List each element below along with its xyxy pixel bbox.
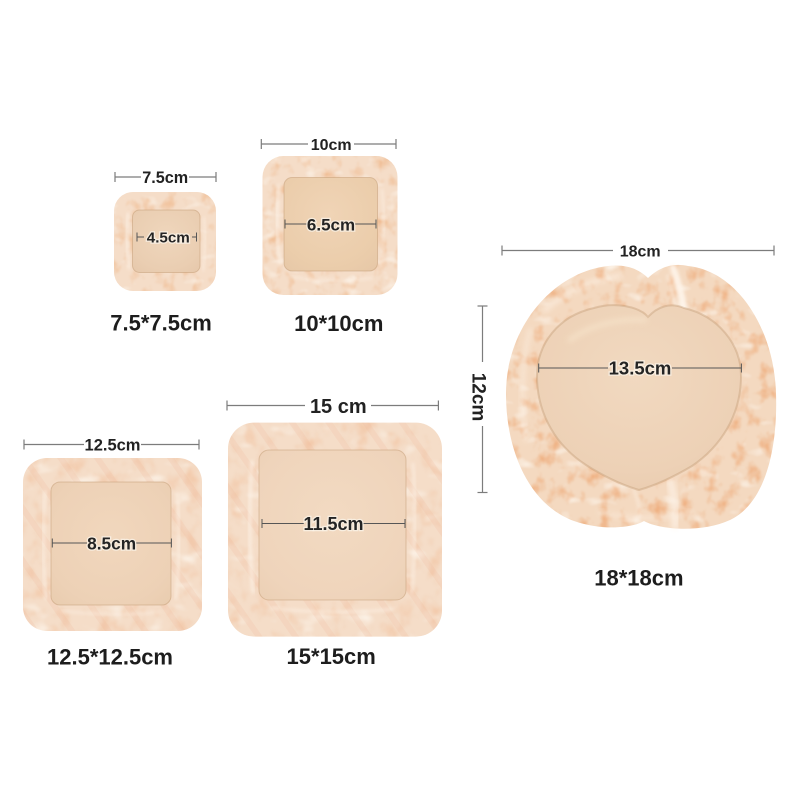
svg-text:12.5cm: 12.5cm <box>85 437 141 455</box>
svg-text:6.5cm: 6.5cm <box>307 215 355 234</box>
svg-text:15*15cm: 15*15cm <box>287 644 376 669</box>
svg-text:7.5*7.5cm: 7.5*7.5cm <box>110 311 212 336</box>
svg-text:8.5cm: 8.5cm <box>87 534 136 554</box>
svg-text:11.5cm: 11.5cm <box>303 514 363 534</box>
svg-text:4.5cm: 4.5cm <box>147 229 190 246</box>
svg-text:7.5cm: 7.5cm <box>142 169 188 187</box>
svg-text:10cm: 10cm <box>311 137 352 154</box>
svg-text:18cm: 18cm <box>620 243 661 260</box>
svg-text:10*10cm: 10*10cm <box>294 311 383 336</box>
svg-text:12cm: 12cm <box>468 373 489 422</box>
svg-text:18*18cm: 18*18cm <box>594 565 683 590</box>
svg-text:15 cm: 15 cm <box>310 396 367 418</box>
svg-text:12.5*12.5cm: 12.5*12.5cm <box>47 644 173 669</box>
svg-text:13.5cm: 13.5cm <box>609 358 672 379</box>
